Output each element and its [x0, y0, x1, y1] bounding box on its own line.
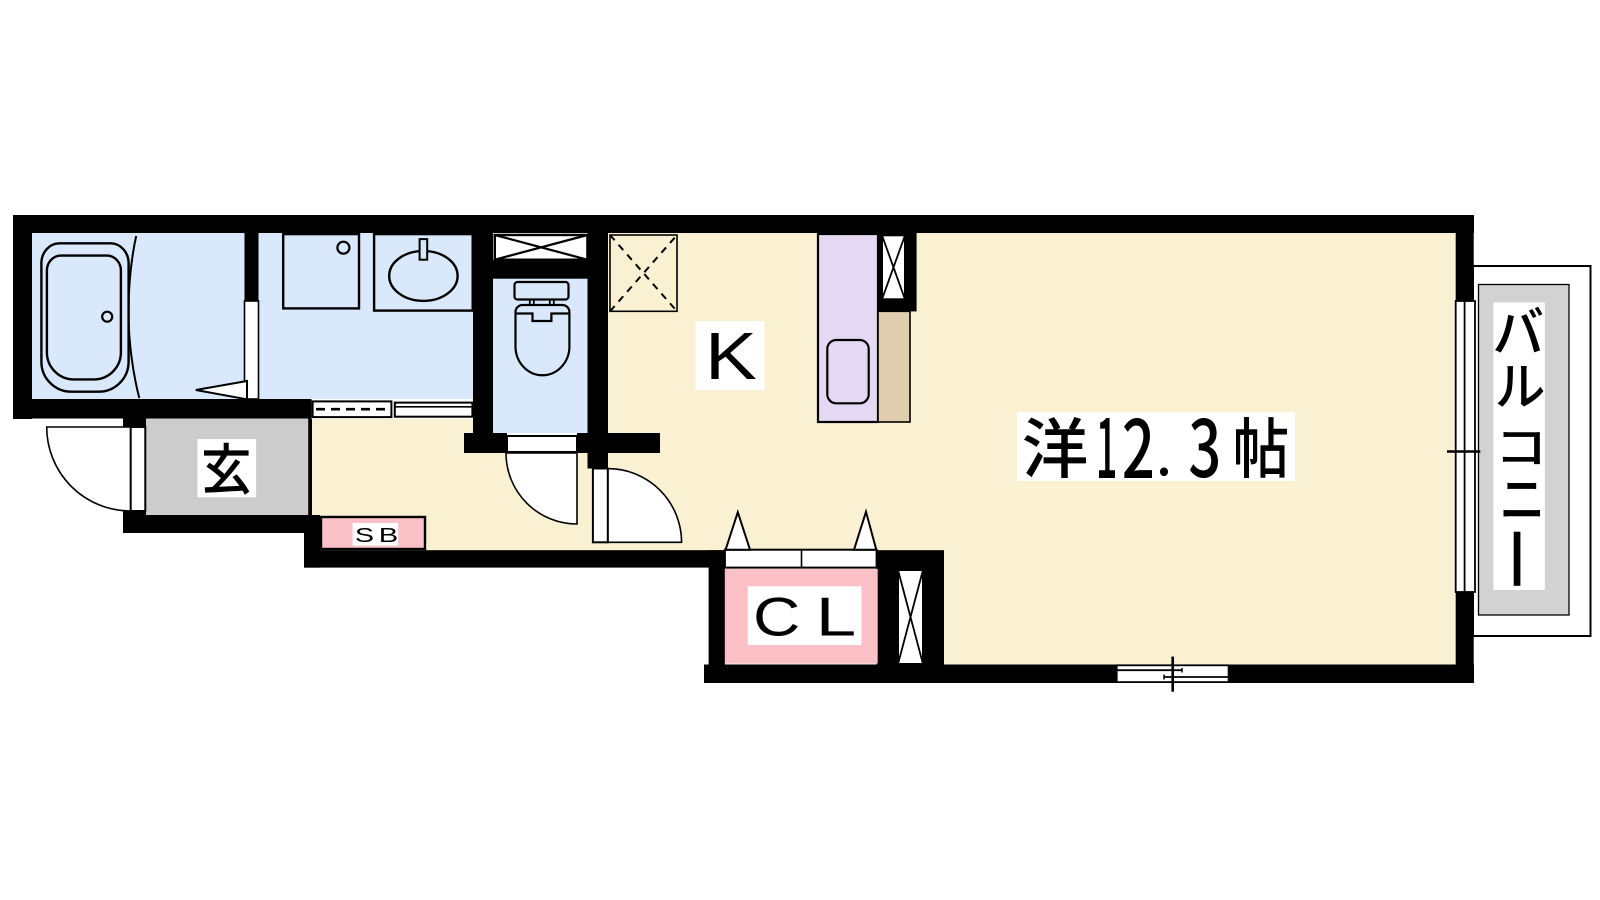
svg-text:B: B — [379, 524, 398, 547]
svg-text:K: K — [705, 319, 757, 393]
svg-text:C: C — [753, 585, 800, 647]
svg-text:L: L — [816, 586, 856, 647]
svg-text:S: S — [355, 524, 374, 547]
